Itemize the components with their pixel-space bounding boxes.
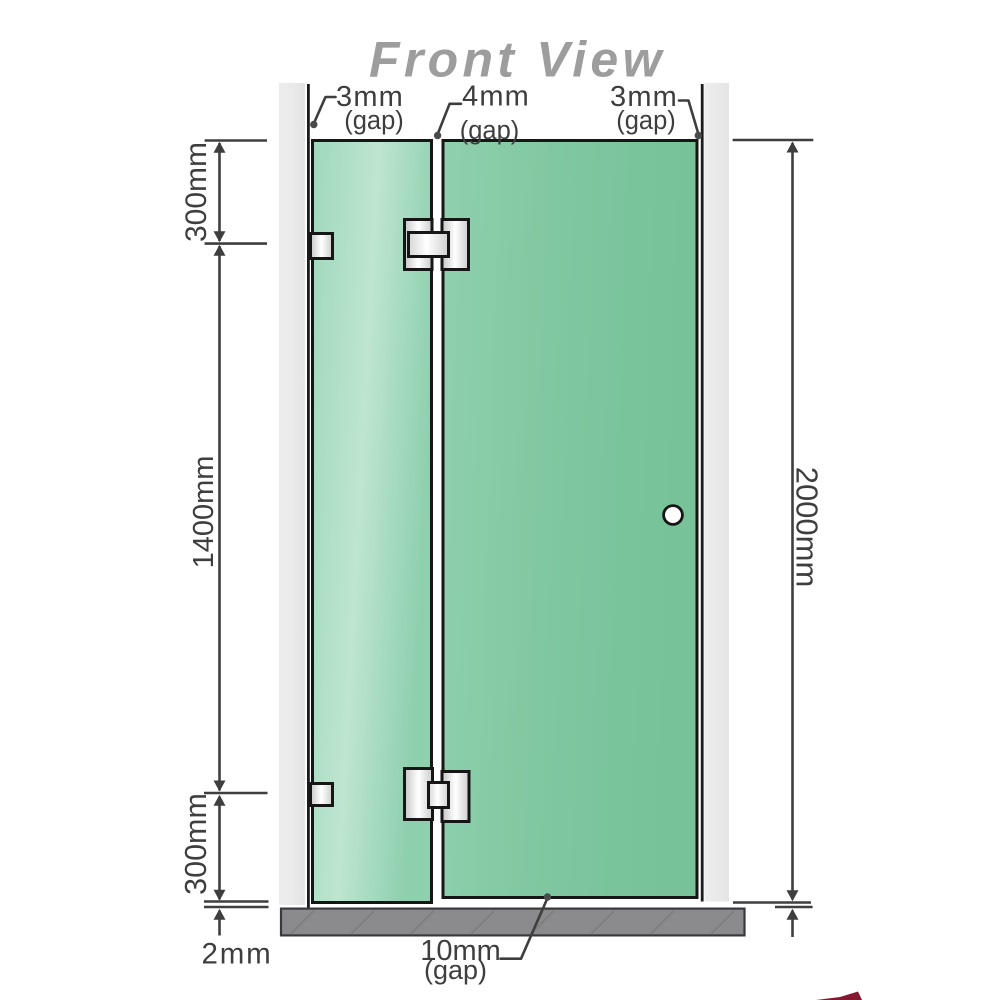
svg-text:2mm: 2mm	[202, 938, 273, 971]
svg-text:300mm: 300mm	[180, 142, 213, 242]
svg-text:300mm: 300mm	[179, 793, 213, 895]
svg-text:(gap): (gap)	[424, 955, 487, 985]
svg-text:1400mm: 1400mm	[188, 456, 220, 569]
svg-text:(gap): (gap)	[616, 107, 676, 135]
svg-text:(gap): (gap)	[344, 107, 404, 135]
svg-text:(gap): (gap)	[460, 117, 520, 145]
svg-text:Front View: Front View	[369, 32, 666, 88]
svg-text:2000mm: 2000mm	[790, 467, 825, 588]
svg-text:4mm: 4mm	[462, 81, 530, 113]
